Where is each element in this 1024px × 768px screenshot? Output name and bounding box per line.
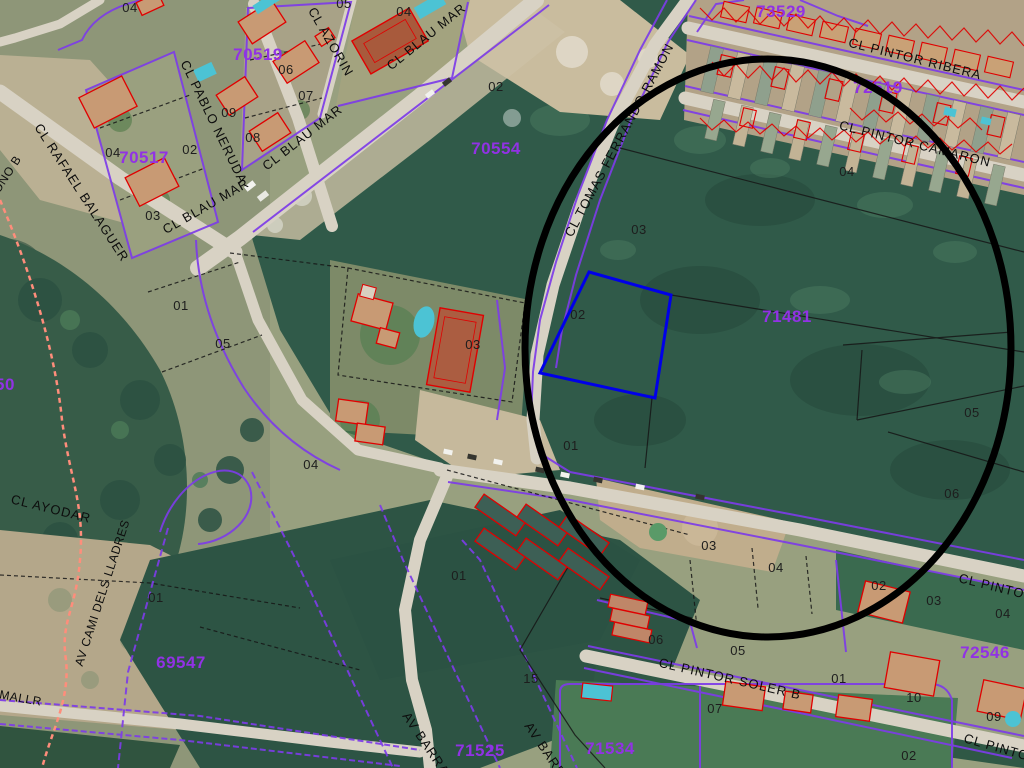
plot-number: 05 xyxy=(730,643,745,658)
plot-number: 07 xyxy=(298,88,313,103)
parcel-number-71525: 71525 xyxy=(455,741,505,760)
parcel-number-edge-fragment: 50 xyxy=(0,375,15,394)
plot-number: 06 xyxy=(944,486,959,501)
plot-number: 04 xyxy=(839,164,854,179)
plot-number: 05 xyxy=(964,405,979,420)
plot-number: 04 xyxy=(768,560,783,575)
plot-number: 03 xyxy=(465,337,480,352)
plot-number: 02 xyxy=(570,307,585,322)
plot-number: 02 xyxy=(871,578,886,593)
plot-number: 01 xyxy=(148,590,163,605)
plot-number: 01 xyxy=(831,671,846,686)
plot-number: 06 xyxy=(648,632,663,647)
parcel-number-70517: 70517 xyxy=(119,148,169,167)
plot-number: 04 xyxy=(122,0,137,15)
parcel-number-71481: 71481 xyxy=(762,307,812,326)
plot-number: 08 xyxy=(245,130,260,145)
plot-number: 03 xyxy=(145,208,160,223)
plot-number: 02 xyxy=(901,748,916,763)
plot-number: 09 xyxy=(221,105,236,120)
plot-number: 04 xyxy=(396,4,411,19)
plot-number: 02 xyxy=(182,142,197,157)
parcel-number-71534: 71534 xyxy=(585,739,635,758)
plot-number: 02 xyxy=(488,79,503,94)
plot-number: 04 xyxy=(303,457,318,472)
plot-number: 05 xyxy=(336,0,351,11)
map-canvas: 04 05 04 06 07 09 08 02 04 03 02 01 05 0… xyxy=(0,0,1024,768)
plot-number: 01 xyxy=(563,438,578,453)
plot-number: 05 xyxy=(215,336,230,351)
plot-number: 03 xyxy=(926,593,941,608)
plot-number: 01 xyxy=(451,568,466,583)
plot-number: 03 xyxy=(631,222,646,237)
plot-number: 03 xyxy=(701,538,716,553)
parcel-number-69547: 69547 xyxy=(156,653,206,672)
plot-number: 09 xyxy=(986,709,1001,724)
parcel-number-70519: 70519 xyxy=(233,45,283,64)
parcel-number-72546: 72546 xyxy=(960,643,1010,662)
cadastral-map[interactable]: 04 05 04 06 07 09 08 02 04 03 02 01 05 0… xyxy=(0,0,1024,768)
plot-number: 04 xyxy=(995,606,1010,621)
plot-number: 10 xyxy=(906,690,921,705)
plot-number: 01 xyxy=(173,298,188,313)
plot-number: 07 xyxy=(707,701,722,716)
plot-number: 06 xyxy=(278,62,293,77)
parcel-number-73529: 73529 xyxy=(756,2,806,21)
plot-number: 15 xyxy=(523,671,538,686)
parcel-number-70554: 70554 xyxy=(471,139,521,158)
